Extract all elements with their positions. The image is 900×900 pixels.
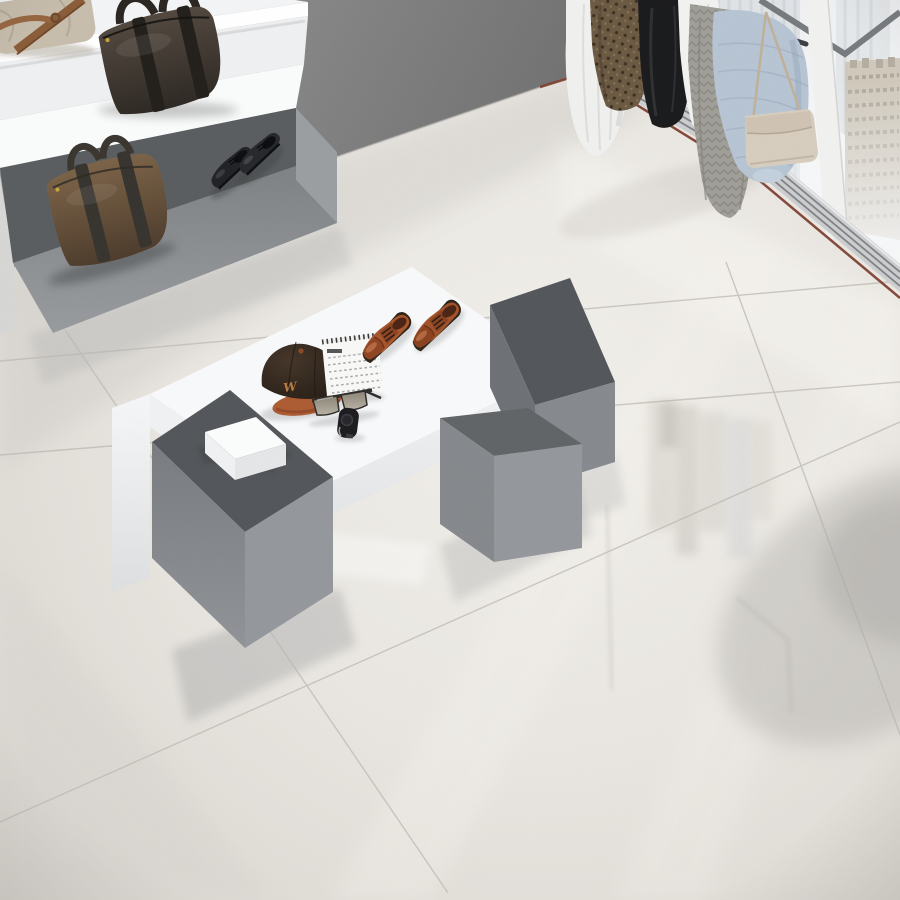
vignette [0, 0, 900, 900]
scene-canvas: W [0, 0, 900, 900]
showroom-scene: W [0, 0, 900, 900]
